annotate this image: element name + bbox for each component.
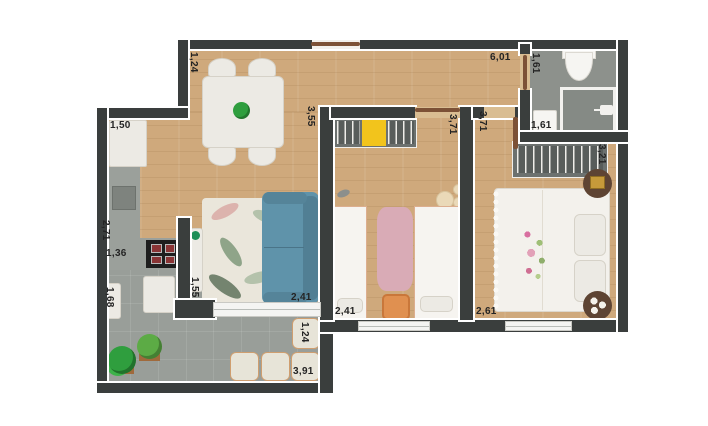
wall-bedroom2-top: [331, 107, 415, 118]
kitchen-sink-icon: [112, 186, 136, 210]
dim-balcony-side: 1,24: [299, 322, 309, 343]
dim-kitchen-width: 1,36: [106, 249, 127, 259]
dim-balcony-depth: 1,68: [104, 287, 114, 308]
wardrobe-clothes-icon: [517, 146, 603, 173]
pouf: [261, 352, 290, 381]
dim-bath-width: 1,61: [531, 121, 552, 131]
dim-living-entry: 1,24: [188, 52, 198, 73]
vase-icon: [191, 231, 200, 240]
plant-icon: [137, 334, 162, 359]
dining-chair: [248, 146, 276, 166]
pouf: [230, 352, 259, 381]
dim-living-side: 1,55: [189, 277, 199, 298]
bedroom2-door: [415, 108, 460, 112]
dining-chair: [248, 58, 276, 78]
sofa-backrest: [303, 196, 318, 300]
wardrobe-accent: [362, 119, 386, 146]
dim-kitchen-depth: 2,71: [100, 220, 110, 241]
dim-master-width: 2,61: [476, 307, 497, 317]
window-master: [505, 321, 572, 331]
dim-kitchen-fridge: 1,50: [110, 121, 131, 131]
burner-icon: [165, 256, 176, 265]
dim-bedroom2-width: 2,41: [335, 307, 356, 317]
sofa-armrest: [263, 192, 307, 204]
stove-icon: [146, 240, 180, 268]
pillow-icon: [420, 296, 453, 312]
wall-living-bedroom2: [320, 107, 333, 320]
bathroom-door: [523, 55, 527, 90]
crate-icon: [590, 176, 605, 189]
dim-living-width: 6,01: [490, 53, 511, 63]
wall-bedroom2-master: [460, 107, 473, 320]
dim-master-depth: 3,71: [477, 111, 487, 132]
wall-step: [97, 108, 188, 118]
bed-ruffle-icon: [492, 190, 500, 310]
wardrobe-clothes-icon: [388, 121, 414, 144]
burner-icon: [151, 256, 162, 265]
wall-right: [618, 40, 628, 332]
shower-head-stem: [594, 109, 602, 111]
dining-chair: [208, 146, 236, 166]
window-bedroom2: [358, 321, 430, 331]
pillow-icon: [574, 214, 606, 256]
master-door: [513, 117, 518, 149]
burner-icon: [151, 244, 162, 253]
dining-chair: [208, 58, 236, 78]
dim-bath-door: 1,61: [530, 53, 540, 74]
floral-motif-icon: [516, 226, 554, 282]
dim-balcony-width: 3,91: [293, 367, 314, 377]
wall-balcony-bottom: [97, 383, 333, 393]
washer: [143, 276, 175, 313]
burner-icon: [165, 244, 176, 253]
pink-rug: [377, 207, 413, 291]
dim-bedroom2-depth: 3,71: [447, 114, 457, 135]
dim-living-bottom: 2,41: [291, 293, 312, 303]
wardrobe-clothes-icon: [337, 121, 360, 144]
nightstand-bedroom2: [382, 294, 410, 320]
wall-top: [178, 40, 628, 49]
master-doorway: [484, 107, 515, 118]
wall-living-balcony-stub: [175, 300, 215, 318]
plant-icon: [233, 102, 250, 119]
sofa-cushion-seam: [264, 247, 304, 248]
wall-left-upper: [178, 40, 188, 118]
dim-living-depth: 3,55: [305, 106, 315, 127]
sliding-door-balcony: [213, 302, 321, 317]
floor-plan: 1,24 1,50 3,55 6,01 1,61 1,61 3,71 3,71 …: [0, 0, 708, 426]
entrance-door: [311, 42, 360, 46]
wall-bathroom-left-upper: [520, 44, 530, 54]
dice-decor-icon: [588, 296, 608, 316]
dim-master-wardrobe: 3,21: [596, 144, 606, 165]
plant-icon: [108, 346, 136, 374]
wall-bathroom-bottom: [520, 132, 628, 142]
